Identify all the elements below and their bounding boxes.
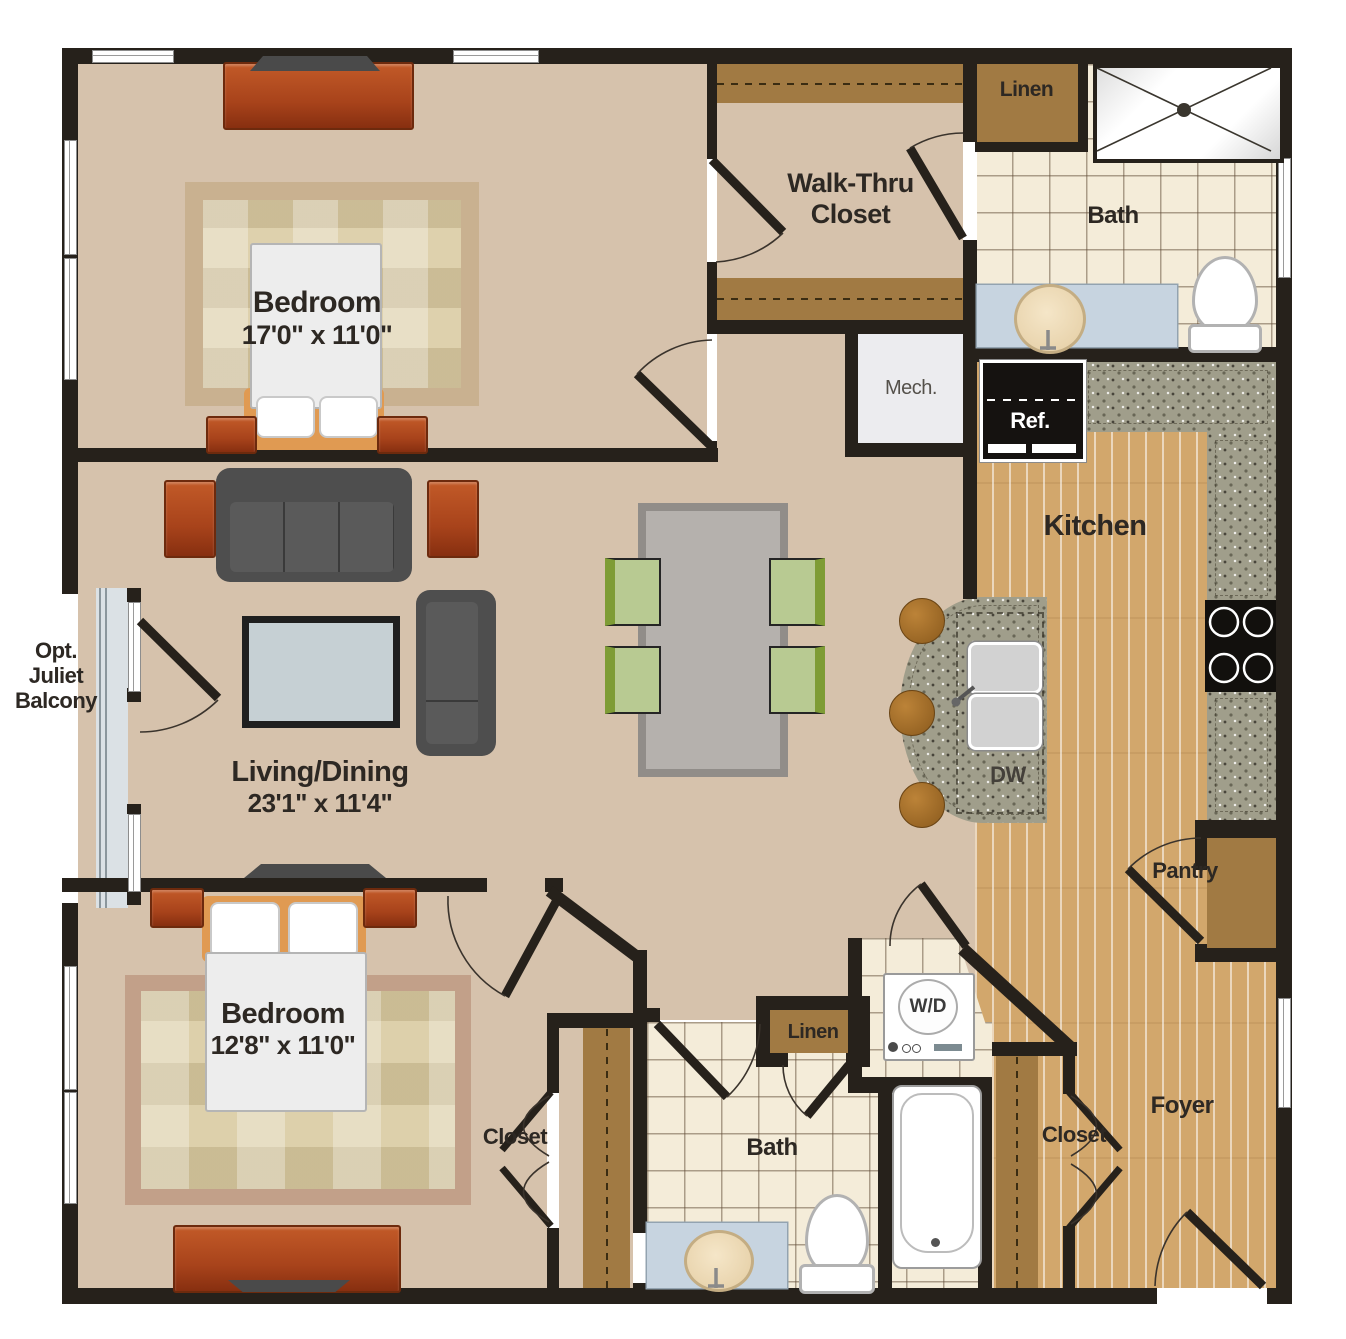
linen-closet-top — [975, 64, 1078, 142]
room-label: Bedroom — [183, 998, 383, 1031]
wall — [707, 64, 717, 159]
wall — [707, 441, 717, 462]
wall — [707, 320, 975, 334]
dishwasher-label: DW — [978, 762, 1038, 787]
toilet-tank — [1188, 324, 1262, 353]
sofa-cushions — [230, 502, 394, 572]
bath-top-label: Bath — [1063, 202, 1163, 229]
wall — [1078, 64, 1088, 152]
balcony-window — [128, 602, 141, 692]
closet-shelf — [717, 64, 963, 103]
pillow — [256, 396, 315, 438]
bathtub-basin — [900, 1093, 974, 1253]
juliet-balcony-deck — [96, 588, 128, 908]
refrigerator-handle — [1032, 444, 1076, 453]
wall — [1195, 820, 1292, 838]
coffee-table — [242, 616, 400, 728]
window — [1278, 158, 1291, 278]
wall — [1195, 948, 1292, 962]
foyer-closet-shelf — [996, 1056, 1038, 1288]
washer-dryer-knob — [912, 1044, 921, 1053]
dining-chair — [769, 646, 825, 714]
wall — [756, 1053, 788, 1067]
balcony-window — [128, 814, 141, 892]
window — [64, 966, 77, 1090]
bedroom-top-label-group: Bedroom 17'0" x 11'0" — [217, 286, 417, 351]
end-table — [427, 480, 479, 558]
window — [1278, 998, 1291, 1108]
pillow — [210, 902, 280, 958]
nightstand — [377, 416, 428, 454]
mech-label: Mech. — [861, 377, 961, 400]
end-table — [164, 480, 216, 558]
wall — [633, 950, 647, 1233]
room-dimensions: 23'1" x 11'4" — [220, 789, 420, 819]
shower — [1093, 64, 1284, 163]
wall — [62, 878, 487, 892]
window — [64, 258, 77, 380]
counter-top — [1080, 362, 1276, 432]
balcony-wall-cap — [127, 804, 141, 814]
door-threshold — [633, 1233, 647, 1283]
wall — [1063, 1042, 1075, 1094]
bathtub-drain — [931, 1238, 940, 1247]
foyer-label: Foyer — [1132, 1092, 1232, 1119]
sink-oval — [684, 1230, 754, 1292]
dining-chair — [605, 558, 661, 626]
balcony-wall-cap — [127, 588, 141, 602]
toilet-tank — [799, 1264, 875, 1294]
island-sink-basin-top — [968, 642, 1042, 694]
tv — [244, 864, 386, 878]
stool — [889, 690, 935, 736]
dining-table — [638, 503, 788, 777]
juliet-balcony-label: Opt. Juliet Balcony — [8, 638, 104, 713]
window — [92, 50, 174, 63]
floor-plan: W/D — [0, 0, 1346, 1339]
wall — [963, 240, 977, 334]
nightstand — [206, 416, 257, 454]
window — [453, 50, 539, 63]
pillow — [319, 396, 378, 438]
bedroom-closet-shelf — [583, 1028, 630, 1288]
washer-dryer-knob — [902, 1044, 911, 1053]
walk-thru-closet-label: Walk-Thru Closet — [768, 168, 933, 230]
refrigerator-handle — [988, 444, 1026, 453]
window — [64, 1092, 77, 1204]
wall — [845, 334, 858, 457]
window — [64, 140, 77, 255]
wall — [647, 1008, 660, 1022]
island-sink-basin-bottom — [968, 694, 1042, 750]
tv — [250, 56, 380, 71]
wall — [547, 1228, 559, 1290]
living-dining-label-group: Living/Dining 23'1" x 11'4" — [220, 756, 420, 819]
foyer-closet-label: Closet — [1024, 1122, 1124, 1147]
counter-right-lower — [1207, 690, 1276, 820]
hall-floor — [717, 334, 845, 448]
armchair-cushions — [426, 602, 478, 744]
wall — [848, 938, 862, 1091]
room-dimensions: 12'8" x 11'0" — [183, 1031, 383, 1061]
stool — [899, 598, 945, 644]
pantry-shelf — [1207, 838, 1276, 948]
linen-top-label: Linen — [975, 78, 1078, 102]
wall — [633, 1283, 647, 1304]
dining-chair — [605, 646, 661, 714]
wall — [1063, 1226, 1075, 1288]
room-label: Living/Dining — [220, 756, 420, 789]
washer-dryer-panel — [934, 1044, 962, 1051]
closet-shelf — [717, 278, 963, 320]
kitchen-label: Kitchen — [1020, 510, 1170, 543]
bath-bottom-label: Bath — [722, 1134, 822, 1161]
counter-right-upper — [1207, 432, 1276, 604]
nightstand — [363, 888, 417, 928]
stool — [899, 782, 945, 828]
armchair — [416, 590, 496, 756]
room-label: Bedroom — [217, 286, 417, 320]
washer-dryer-knob — [888, 1042, 898, 1052]
sofa — [216, 468, 412, 582]
wall — [845, 443, 975, 457]
bedroom-bottom-label-group: Bedroom 12'8" x 11'0" — [183, 998, 383, 1061]
washer-dryer-door: W/D — [898, 979, 958, 1035]
pantry-label: Pantry — [1133, 858, 1237, 883]
wall — [975, 142, 1088, 152]
wall — [547, 1013, 647, 1028]
linen-bottom-label: Linen — [770, 1021, 856, 1044]
cooktop — [1205, 600, 1276, 692]
room-dimensions: 17'0" x 11'0" — [217, 320, 417, 351]
wall — [963, 64, 977, 142]
wall — [878, 1077, 892, 1293]
sink-round — [1014, 284, 1086, 354]
pillow — [288, 902, 358, 958]
nightstand — [150, 888, 204, 928]
dresser — [223, 62, 414, 130]
washer-dryer-label: W/D — [910, 996, 947, 1018]
tv — [228, 1280, 350, 1292]
door-threshold — [963, 142, 977, 240]
wall — [963, 334, 977, 599]
bedroom-closet-label: Closet — [465, 1124, 565, 1149]
wall — [547, 1013, 559, 1093]
refrigerator-label: Ref. — [980, 408, 1080, 433]
dining-chair — [769, 558, 825, 626]
